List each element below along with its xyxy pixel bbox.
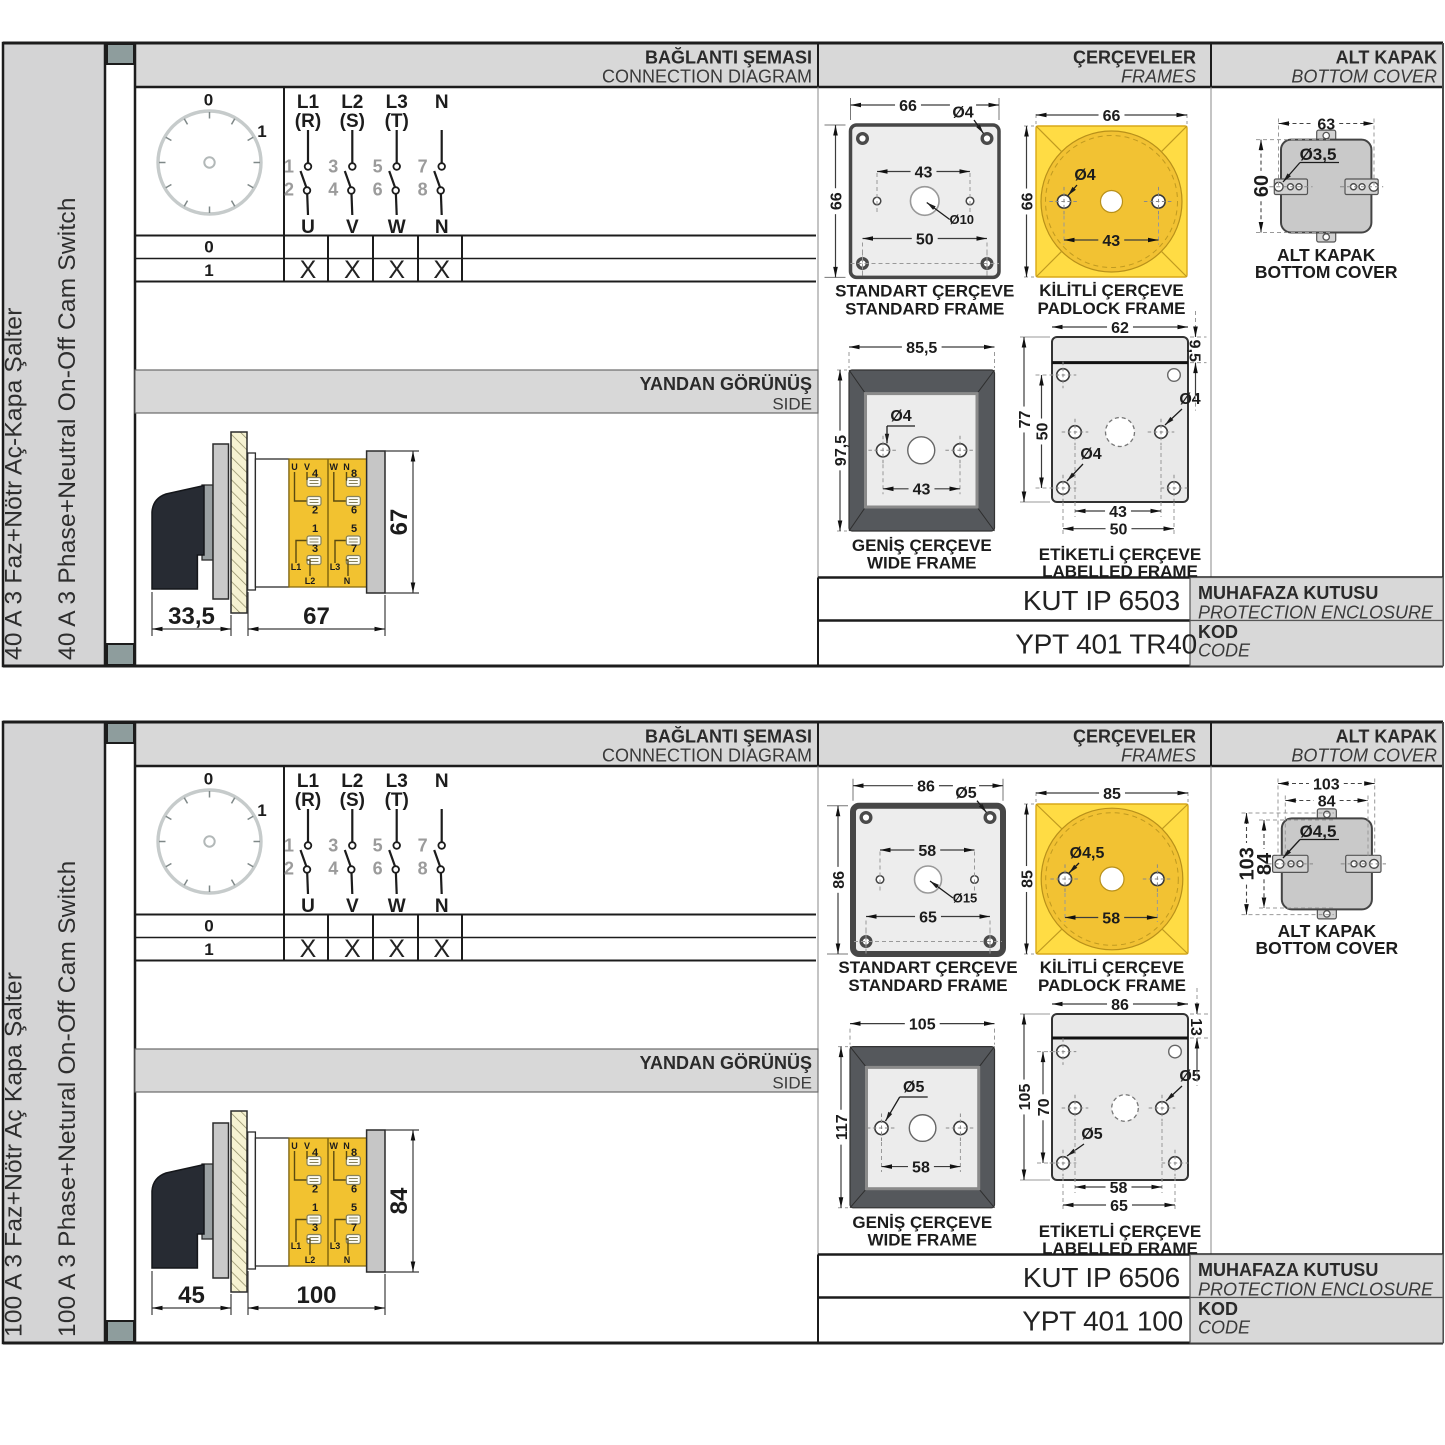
- svg-text:77: 77: [1017, 411, 1034, 429]
- svg-text:ALT KAPAK: ALT KAPAK: [1336, 48, 1437, 68]
- svg-text:V: V: [304, 462, 310, 472]
- svg-text:7: 7: [351, 1222, 357, 1234]
- svg-text:STANDARD FRAME: STANDARD FRAME: [848, 976, 1007, 995]
- svg-text:Ø4: Ø4: [1179, 391, 1200, 408]
- svg-text:0: 0: [204, 770, 213, 789]
- svg-text:L3: L3: [386, 771, 408, 792]
- svg-text:117: 117: [834, 1114, 851, 1140]
- svg-text:105: 105: [909, 1016, 936, 1033]
- svg-text:1: 1: [257, 801, 266, 820]
- svg-text:YPT 401 100: YPT 401 100: [1022, 1306, 1183, 1337]
- svg-text:58: 58: [918, 843, 936, 860]
- svg-text:PROTECTION ENCLOSURE: PROTECTION ENCLOSURE: [1198, 603, 1434, 623]
- svg-text:0: 0: [204, 91, 213, 110]
- svg-text:85: 85: [1103, 786, 1121, 803]
- svg-text:STANDART ÇERÇEVE: STANDART ÇERÇEVE: [838, 958, 1017, 977]
- svg-text:8: 8: [418, 859, 428, 879]
- svg-text:33,5: 33,5: [168, 603, 215, 630]
- svg-text:W: W: [330, 1141, 339, 1151]
- svg-text:L2: L2: [341, 92, 363, 113]
- svg-text:97,5: 97,5: [833, 435, 850, 466]
- svg-text:(S): (S): [340, 111, 365, 132]
- svg-text:3: 3: [312, 1222, 318, 1234]
- svg-text:100: 100: [296, 1282, 336, 1309]
- svg-text:KOD: KOD: [1198, 622, 1238, 642]
- svg-text:40 A 3 Phase+Neutral On-Off Ca: 40 A 3 Phase+Neutral On-Off Cam Switch: [54, 197, 81, 660]
- svg-text:Ø4,5: Ø4,5: [1070, 845, 1105, 862]
- svg-text:L2: L2: [305, 576, 316, 586]
- svg-text:58: 58: [1102, 910, 1120, 927]
- svg-text:86: 86: [917, 779, 935, 796]
- svg-text:X: X: [344, 256, 361, 284]
- svg-text:PROTECTION ENCLOSURE: PROTECTION ENCLOSURE: [1198, 1280, 1434, 1300]
- svg-text:(R): (R): [295, 111, 321, 132]
- svg-text:3: 3: [312, 543, 318, 555]
- svg-text:7: 7: [351, 543, 357, 555]
- svg-text:KUT IP 6506: KUT IP 6506: [1023, 1262, 1180, 1293]
- svg-text:4: 4: [328, 180, 338, 200]
- svg-text:WIDE FRAME: WIDE FRAME: [867, 1230, 977, 1249]
- svg-text:43: 43: [913, 482, 931, 499]
- svg-text:N: N: [344, 1255, 351, 1265]
- svg-text:1: 1: [204, 940, 213, 959]
- svg-text:Ø15: Ø15: [953, 891, 978, 906]
- svg-text:60: 60: [1251, 175, 1273, 197]
- svg-text:Ø4,5: Ø4,5: [1300, 822, 1337, 841]
- svg-text:L2: L2: [305, 1255, 316, 1265]
- svg-text:84: 84: [1318, 793, 1336, 810]
- svg-text:0: 0: [204, 238, 213, 257]
- svg-text:L1: L1: [297, 92, 320, 113]
- svg-text:1: 1: [257, 122, 266, 141]
- svg-text:2: 2: [312, 505, 318, 517]
- svg-text:N: N: [435, 771, 449, 792]
- svg-text:(T): (T): [385, 790, 409, 811]
- svg-text:67: 67: [386, 509, 413, 536]
- svg-text:103: 103: [1313, 776, 1340, 793]
- svg-text:CODE: CODE: [1198, 1318, 1251, 1338]
- svg-text:1: 1: [284, 157, 294, 177]
- svg-text:5: 5: [351, 1202, 357, 1214]
- svg-text:SIDE: SIDE: [772, 395, 812, 414]
- svg-text:66: 66: [1103, 108, 1121, 125]
- svg-text:2: 2: [284, 859, 294, 879]
- svg-text:50: 50: [1110, 521, 1128, 538]
- svg-text:L3: L3: [330, 562, 341, 572]
- svg-text:2: 2: [284, 180, 294, 200]
- svg-text:3: 3: [328, 836, 338, 856]
- svg-text:ÇERÇEVELER: ÇERÇEVELER: [1073, 727, 1196, 747]
- svg-text:4: 4: [328, 859, 338, 879]
- svg-text:7: 7: [418, 836, 428, 856]
- svg-text:105: 105: [1017, 1084, 1034, 1111]
- svg-text:L1: L1: [291, 562, 302, 572]
- svg-text:X: X: [433, 256, 450, 284]
- svg-text:BAĞLANTI ŞEMASI: BAĞLANTI ŞEMASI: [645, 47, 812, 68]
- svg-text:U: U: [291, 1141, 298, 1151]
- svg-text:GENİŞ ÇERÇEVE: GENİŞ ÇERÇEVE: [852, 1213, 992, 1232]
- svg-text:6: 6: [351, 1184, 357, 1196]
- svg-text:85: 85: [1019, 870, 1036, 888]
- svg-text:FRAMES: FRAMES: [1121, 746, 1196, 766]
- svg-text:66: 66: [899, 98, 917, 115]
- svg-text:Ø4: Ø4: [890, 408, 911, 425]
- svg-text:100 A 3 Faz+Nötr Aç Kapa Şalte: 100 A 3 Faz+Nötr Aç Kapa Şalter: [1, 972, 28, 1337]
- svg-text:6: 6: [351, 505, 357, 517]
- svg-text:W: W: [330, 462, 339, 472]
- svg-text:X: X: [300, 256, 317, 284]
- svg-text:45: 45: [178, 1282, 205, 1309]
- svg-text:L2: L2: [341, 771, 363, 792]
- svg-text:PADLOCK FRAME: PADLOCK FRAME: [1038, 299, 1186, 318]
- svg-text:U: U: [291, 462, 298, 472]
- svg-text:58: 58: [912, 1159, 930, 1176]
- svg-text:8: 8: [351, 468, 357, 480]
- svg-text:8: 8: [351, 1147, 357, 1159]
- svg-text:62: 62: [1111, 320, 1129, 337]
- svg-text:(T): (T): [385, 111, 409, 132]
- svg-text:BAĞLANTI ŞEMASI: BAĞLANTI ŞEMASI: [645, 726, 812, 747]
- svg-text:13: 13: [1187, 1018, 1204, 1036]
- svg-text:Ø4: Ø4: [1074, 167, 1095, 184]
- svg-text:70: 70: [1036, 1098, 1053, 1116]
- svg-text:9,5: 9,5: [1186, 340, 1203, 362]
- svg-text:STANDART ÇERÇEVE: STANDART ÇERÇEVE: [835, 281, 1014, 300]
- svg-text:ÇERÇEVELER: ÇERÇEVELER: [1073, 48, 1196, 68]
- svg-text:1: 1: [312, 1202, 318, 1214]
- svg-text:CODE: CODE: [1198, 641, 1251, 661]
- svg-text:BOTTOM COVER: BOTTOM COVER: [1255, 262, 1398, 282]
- svg-text:SIDE: SIDE: [772, 1074, 812, 1093]
- svg-text:N: N: [344, 576, 351, 586]
- svg-text:Ø4: Ø4: [1080, 446, 1101, 463]
- svg-text:FRAMES: FRAMES: [1121, 67, 1196, 87]
- svg-text:STANDARD FRAME: STANDARD FRAME: [845, 299, 1004, 318]
- svg-text:BOTTOM COVER: BOTTOM COVER: [1291, 746, 1437, 766]
- svg-text:YANDAN GÖRÜNÜŞ: YANDAN GÖRÜNÜŞ: [640, 374, 812, 394]
- svg-text:5: 5: [351, 523, 357, 535]
- svg-text:ALT KAPAK: ALT KAPAK: [1336, 727, 1437, 747]
- svg-text:2: 2: [312, 1184, 318, 1196]
- svg-text:KİLİTLİ ÇERÇEVE: KİLİTLİ ÇERÇEVE: [1040, 958, 1185, 977]
- svg-text:L3: L3: [330, 1241, 341, 1251]
- svg-text:N: N: [343, 462, 350, 472]
- svg-text:1: 1: [204, 261, 213, 280]
- svg-text:Ø3,5: Ø3,5: [1300, 145, 1337, 164]
- svg-text:0: 0: [204, 917, 213, 936]
- svg-text:N: N: [435, 92, 449, 113]
- svg-text:(R): (R): [295, 790, 321, 811]
- svg-text:5: 5: [373, 157, 383, 177]
- svg-text:1: 1: [284, 836, 294, 856]
- svg-text:X: X: [344, 935, 361, 963]
- svg-text:KOD: KOD: [1198, 1299, 1238, 1319]
- svg-text:Ø5: Ø5: [955, 785, 976, 802]
- svg-text:65: 65: [1110, 1198, 1128, 1215]
- svg-text:6: 6: [373, 180, 383, 200]
- svg-text:BOTTOM COVER: BOTTOM COVER: [1256, 938, 1399, 958]
- svg-text:40 A 3 Faz+Nötr Aç-Kapa Şalter: 40 A 3 Faz+Nötr Aç-Kapa Şalter: [1, 307, 28, 660]
- svg-text:66: 66: [828, 192, 845, 210]
- svg-text:5: 5: [373, 836, 383, 856]
- svg-text:PADLOCK FRAME: PADLOCK FRAME: [1038, 976, 1186, 995]
- svg-text:MUHAFAZA KUTUSU: MUHAFAZA KUTUSU: [1198, 583, 1378, 603]
- svg-text:MUHAFAZA KUTUSU: MUHAFAZA KUTUSU: [1198, 1260, 1378, 1280]
- svg-text:4: 4: [312, 1147, 319, 1159]
- svg-text:BOTTOM COVER: BOTTOM COVER: [1291, 67, 1437, 87]
- svg-text:L1: L1: [291, 1241, 302, 1251]
- svg-text:L3: L3: [386, 92, 408, 113]
- svg-text:X: X: [433, 935, 450, 963]
- svg-text:100 A 3 Phase+Netural On-Off C: 100 A 3 Phase+Netural On-Off Cam Switch: [54, 861, 81, 1338]
- svg-text:Ø5: Ø5: [1081, 1126, 1102, 1143]
- svg-text:43: 43: [915, 164, 933, 181]
- svg-text:Ø4: Ø4: [952, 105, 973, 122]
- svg-text:50: 50: [916, 231, 934, 248]
- svg-text:1: 1: [312, 523, 318, 535]
- svg-text:X: X: [300, 935, 317, 963]
- svg-text:85,5: 85,5: [906, 340, 937, 357]
- svg-text:86: 86: [831, 871, 848, 889]
- svg-text:Ø10: Ø10: [949, 212, 974, 227]
- svg-text:7: 7: [418, 157, 428, 177]
- svg-text:CONNECTION DIAGRAM: CONNECTION DIAGRAM: [602, 746, 812, 766]
- svg-text:N: N: [343, 1141, 350, 1151]
- svg-text:67: 67: [303, 603, 330, 630]
- svg-text:58: 58: [1110, 1180, 1128, 1197]
- svg-text:V: V: [304, 1141, 310, 1151]
- svg-text:YPT 401 TR40: YPT 401 TR40: [1015, 629, 1197, 660]
- svg-text:8: 8: [418, 180, 428, 200]
- svg-text:KİLİTLİ ÇERÇEVE: KİLİTLİ ÇERÇEVE: [1039, 281, 1184, 300]
- svg-text:3: 3: [328, 157, 338, 177]
- svg-text:GENİŞ ÇERÇEVE: GENİŞ ÇERÇEVE: [852, 536, 992, 555]
- svg-text:Ø5: Ø5: [903, 1079, 924, 1096]
- svg-text:43: 43: [1102, 233, 1120, 250]
- svg-text:65: 65: [919, 909, 937, 926]
- svg-text:63: 63: [1317, 116, 1335, 133]
- svg-text:43: 43: [1109, 504, 1127, 521]
- svg-text:CONNECTION DIAGRAM: CONNECTION DIAGRAM: [602, 67, 812, 87]
- svg-text:50: 50: [1034, 423, 1051, 441]
- svg-text:84: 84: [386, 1187, 413, 1214]
- svg-text:X: X: [388, 256, 405, 284]
- svg-text:X: X: [388, 935, 405, 963]
- svg-text:66: 66: [1019, 193, 1036, 211]
- svg-text:6: 6: [373, 859, 383, 879]
- svg-text:WIDE FRAME: WIDE FRAME: [867, 554, 977, 573]
- svg-text:4: 4: [312, 468, 319, 480]
- svg-text:84: 84: [1254, 852, 1276, 875]
- svg-text:(S): (S): [340, 790, 365, 811]
- svg-text:L1: L1: [297, 771, 320, 792]
- svg-text:KUT IP 6503: KUT IP 6503: [1023, 585, 1180, 616]
- svg-text:86: 86: [1111, 997, 1129, 1014]
- svg-text:YANDAN GÖRÜNÜŞ: YANDAN GÖRÜNÜŞ: [640, 1053, 812, 1073]
